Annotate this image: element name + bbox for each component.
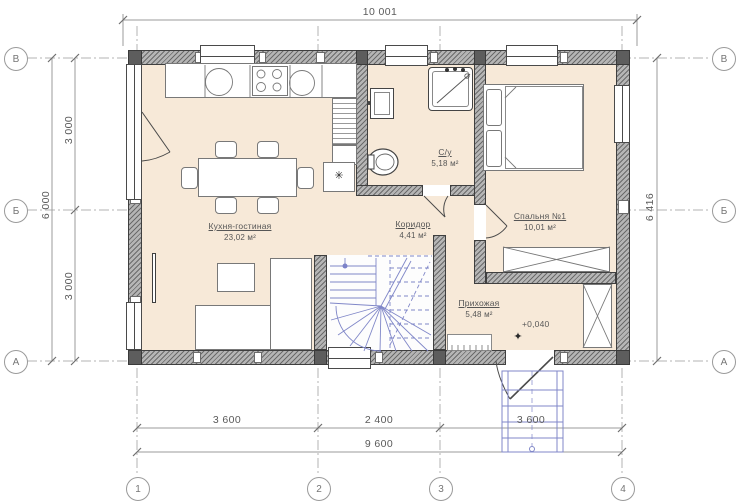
room-name: Коридор: [373, 219, 453, 229]
wall-kitchen-bathroom: [356, 63, 368, 196]
bed-mattress: [505, 86, 583, 169]
wall-bedroom-left-lower: [474, 240, 486, 284]
chair: [215, 197, 237, 214]
wall-pier: [316, 52, 325, 63]
window-living-left: [126, 302, 142, 350]
kitchen-tall-cabinet: [332, 98, 357, 145]
axis-row-v-left: В: [4, 47, 28, 71]
axis-row-a-left: А: [4, 350, 28, 374]
sofa-chaise: [270, 258, 312, 350]
bedroom-wardrobe: [503, 247, 610, 272]
wall-pier: [560, 52, 568, 63]
room-area: 23,02 м²: [190, 233, 290, 242]
window-stairs-bottom: [328, 347, 371, 369]
tv: [152, 253, 156, 303]
junction-bottom-2: [433, 350, 446, 365]
entry-wardrobe: [583, 284, 612, 348]
axis-row-a-right: А: [712, 350, 736, 374]
stove: [252, 66, 288, 96]
shower-tray: [432, 71, 469, 107]
window-bedroom-right: [614, 85, 630, 143]
sofa-seat: [195, 305, 271, 350]
axis-col-2: 2: [307, 477, 331, 501]
wall-pier: [254, 352, 262, 363]
dim-left-total: 6 000: [40, 187, 52, 223]
window-terrace-left: [126, 64, 142, 200]
room-name: Прихожая: [434, 298, 524, 308]
room-area: 5,18 м²: [415, 159, 475, 168]
wall-stairs-left: [314, 255, 327, 350]
entry-bench: [447, 334, 492, 351]
dim-bottom-2: 2 400: [349, 414, 409, 426]
dim-bottom-total: 9 600: [349, 438, 409, 450]
axis-col-1: 1: [126, 477, 150, 501]
axis-col-3: 3: [429, 477, 453, 501]
wall-pier: [259, 52, 266, 63]
chair: [257, 141, 279, 158]
chair: [181, 167, 198, 189]
room-name: С/у: [415, 147, 475, 157]
wall-pier: [193, 352, 201, 363]
bathroom-sink-basin: [374, 92, 390, 115]
room-area: 4,41 м²: [373, 231, 453, 240]
wall-bedroom-bottom: [486, 272, 616, 284]
dim-bottom-1: 3 600: [197, 414, 257, 426]
snowflake-icon: ✳: [330, 169, 348, 182]
room-area: 5,48 м²: [434, 310, 524, 319]
window-bedroom-top: [506, 45, 558, 66]
junction-top-2: [474, 50, 486, 65]
dim-right-height: 6 416: [644, 189, 656, 225]
level-mark-icon: ✦: [511, 330, 525, 343]
dim-left-upper: 3 000: [63, 112, 75, 148]
wall-entry-left: [433, 235, 446, 350]
bedroom-door-opening: [474, 205, 486, 240]
window-bathroom-top: [385, 45, 428, 66]
chair: [215, 141, 237, 158]
corner-bottom-left: [128, 350, 142, 365]
chair: [297, 167, 314, 189]
stair-floor-area: [327, 255, 433, 350]
chair: [257, 197, 279, 214]
dining-table: [198, 158, 297, 197]
dim-bottom-3: 3 600: [501, 414, 561, 426]
room-label-bathroom: С/у 5,18 м²: [415, 147, 475, 168]
axis-row-v-right: В: [712, 47, 736, 71]
dim-left-lower: 3 000: [63, 268, 75, 304]
room-label-entry: Прихожая 5,48 м²: [434, 298, 524, 319]
entrance-door-opening: [505, 350, 555, 365]
wall-pier: [618, 200, 629, 214]
room-area: 10,01 м²: [495, 223, 585, 232]
axis-row-b-left: Б: [4, 199, 28, 223]
wall-pier: [430, 52, 438, 63]
corner-top-right: [616, 50, 630, 65]
wall-bathroom-bottom-left: [356, 185, 423, 196]
coffee-table: [217, 263, 255, 292]
bathroom-door-opening: [423, 185, 450, 196]
room-name: Спальня №1: [495, 211, 585, 221]
room-name: Кухня-гостиная: [190, 221, 290, 231]
pillow: [486, 89, 502, 126]
junction-top-1: [356, 50, 368, 65]
axis-col-4: 4: [611, 477, 635, 501]
axis-row-b-right: Б: [712, 199, 736, 223]
room-label-corridor: Коридор 4,41 м²: [373, 219, 453, 240]
floor-plan-canvas: ✳: [0, 0, 746, 502]
corner-top-left: [128, 50, 142, 65]
room-label-kitchen-living: Кухня-гостиная 23,02 м²: [190, 221, 290, 242]
elevation-value: +0,040: [522, 319, 568, 329]
wall-pier: [560, 352, 568, 363]
corner-bottom-right: [616, 350, 630, 365]
wall-pier: [375, 352, 383, 363]
entry-porch-steps: [502, 371, 563, 452]
pillow: [486, 130, 502, 167]
room-label-bedroom: Спальня №1 10,01 м²: [495, 211, 585, 232]
junction-bottom-1: [314, 350, 327, 365]
dim-top-width: 10 001: [340, 6, 420, 18]
